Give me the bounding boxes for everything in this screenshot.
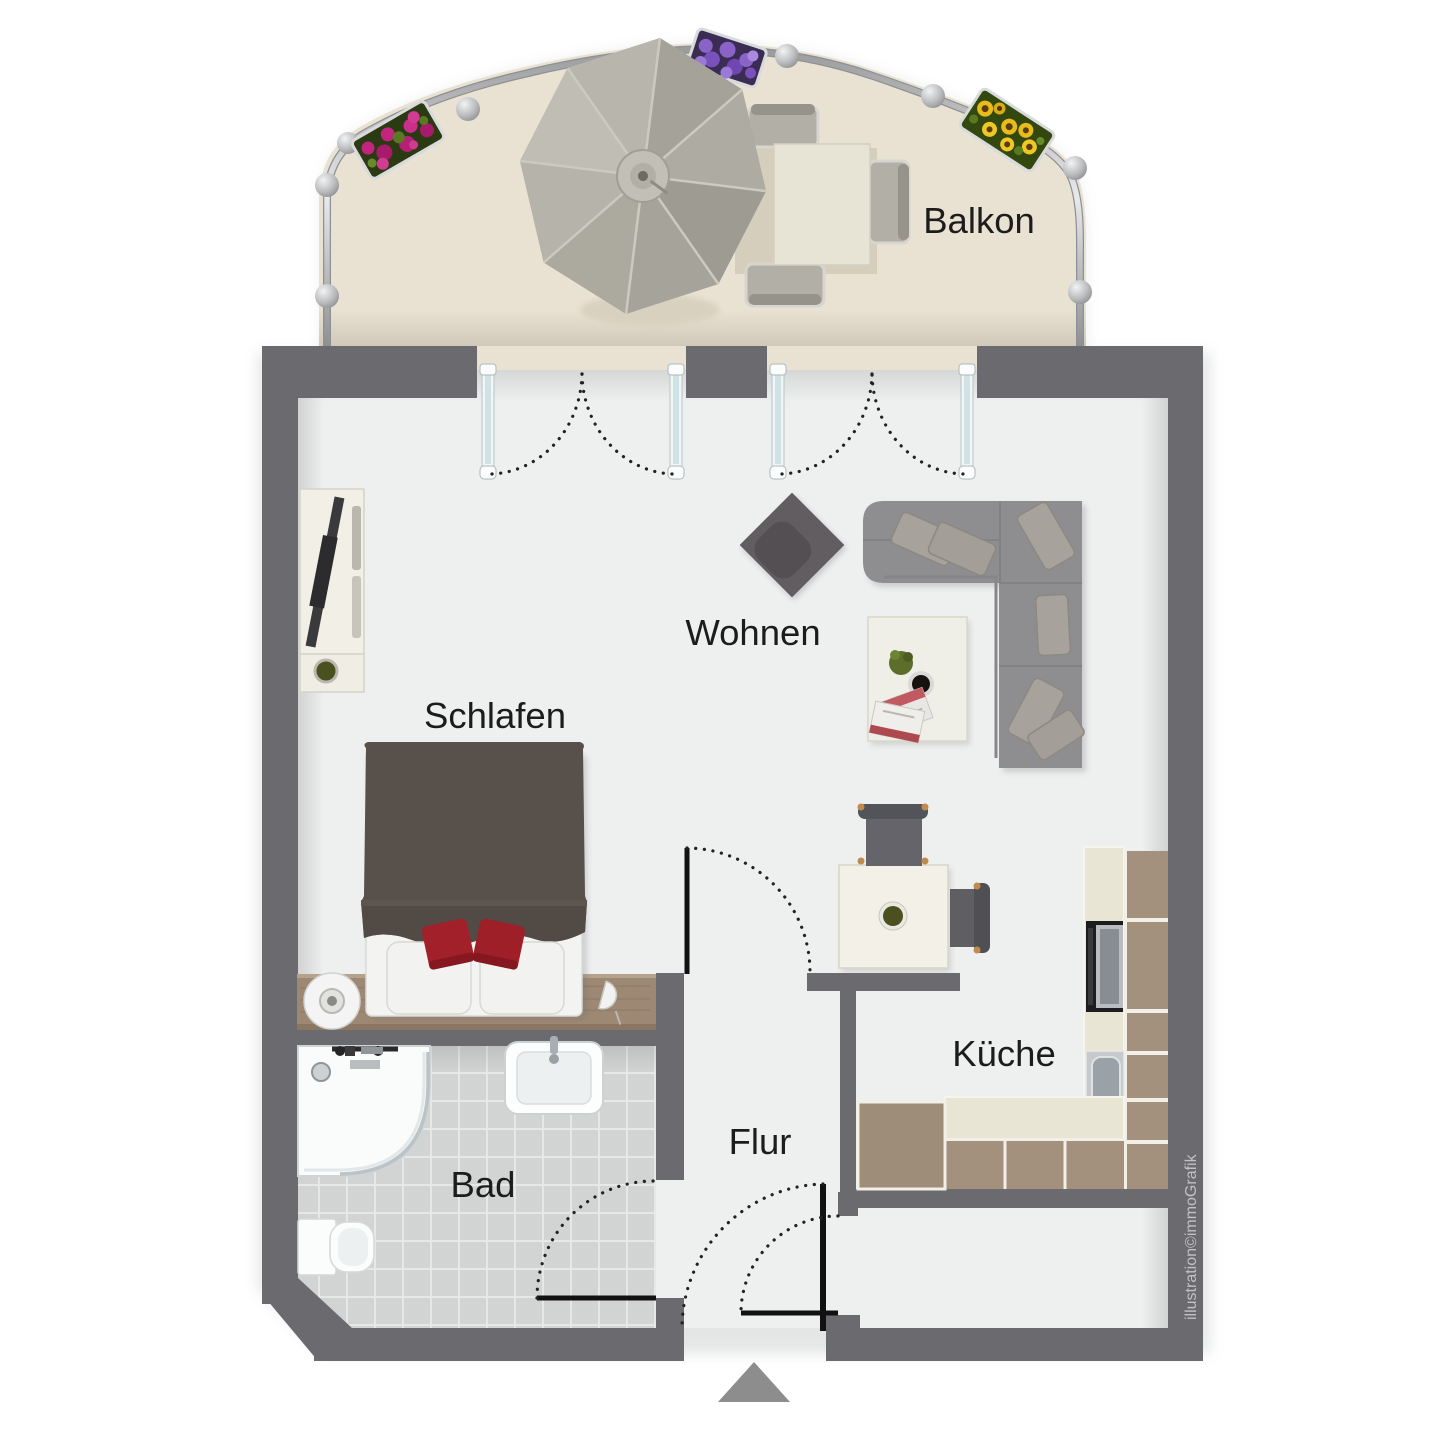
svg-text:Bad: Bad — [451, 1164, 516, 1205]
svg-text:illustration©immoGrafik: illustration©immoGrafik — [1183, 1153, 1200, 1320]
svg-text:Küche: Küche — [952, 1033, 1056, 1074]
svg-text:Balkon: Balkon — [923, 200, 1035, 241]
svg-text:Wohnen: Wohnen — [685, 612, 820, 653]
svg-text:Flur: Flur — [729, 1121, 792, 1162]
svg-text:Schlafen: Schlafen — [424, 695, 566, 736]
